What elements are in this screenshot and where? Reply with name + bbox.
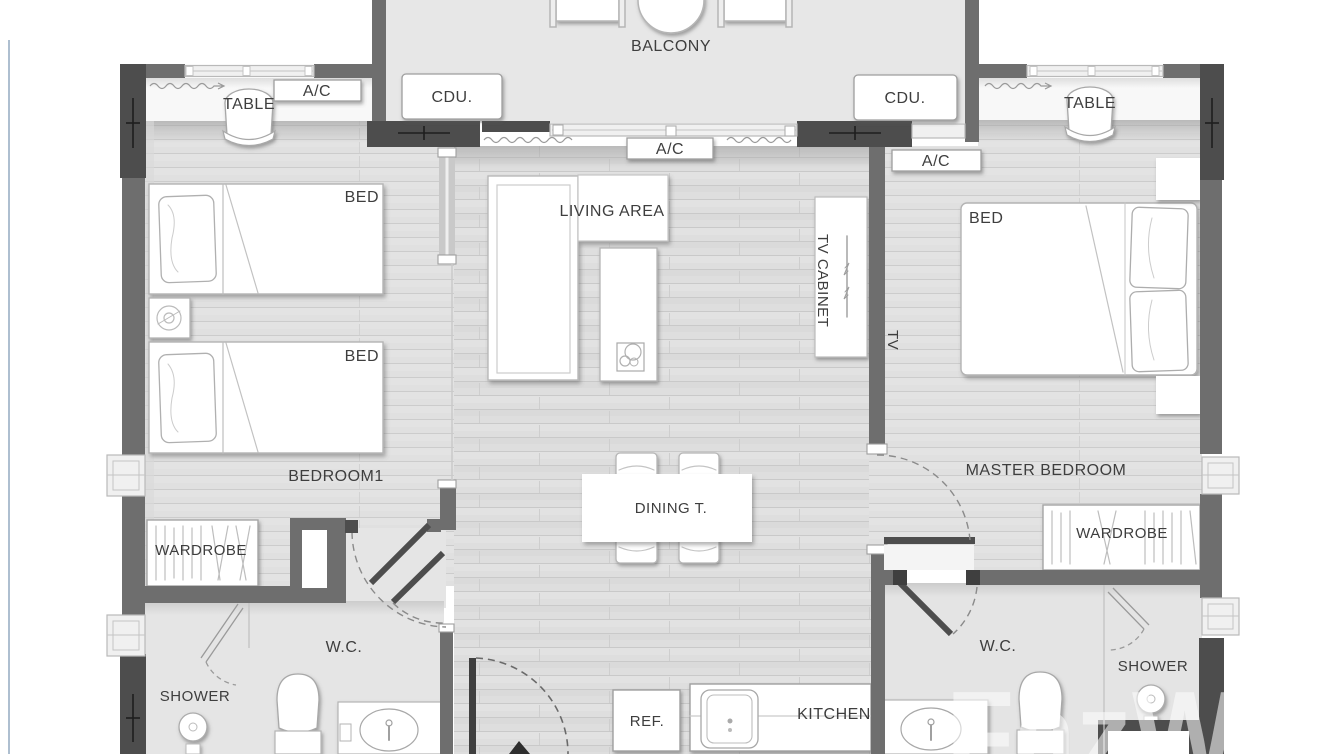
svg-text:SHOWER: SHOWER xyxy=(160,688,231,705)
svg-text:REF.: REF. xyxy=(630,713,665,730)
svg-text:CDU.: CDU. xyxy=(431,89,472,106)
svg-text:A/C: A/C xyxy=(656,141,684,158)
svg-text:FazWaz: FazWaz xyxy=(946,666,1342,754)
svg-text:W.C.: W.C. xyxy=(326,639,363,656)
svg-text:CDU.: CDU. xyxy=(884,90,925,107)
svg-text:DINING T.: DINING T. xyxy=(635,500,708,517)
svg-text:KITCHEN: KITCHEN xyxy=(797,706,871,723)
svg-text:MASTER BEDROOM: MASTER BEDROOM xyxy=(966,462,1127,479)
svg-text:BALCONY: BALCONY xyxy=(631,38,711,55)
svg-text:WARDROBE: WARDROBE xyxy=(155,542,247,559)
svg-text:BED: BED xyxy=(345,348,379,365)
svg-text:TV CABINET: TV CABINET xyxy=(814,234,831,327)
svg-text:WARDROBE: WARDROBE xyxy=(1076,525,1168,542)
svg-text:LIVING AREA: LIVING AREA xyxy=(559,203,664,220)
svg-text:BEDROOM1: BEDROOM1 xyxy=(288,468,384,485)
svg-text:A/C: A/C xyxy=(922,153,950,170)
svg-text:BED: BED xyxy=(969,210,1003,227)
svg-text:BED: BED xyxy=(345,189,379,206)
svg-text:TABLE: TABLE xyxy=(223,96,275,113)
svg-text:W.C.: W.C. xyxy=(980,638,1017,655)
svg-text:TABLE: TABLE xyxy=(1064,95,1116,112)
svg-text:TV: TV xyxy=(884,330,901,350)
svg-text:A/C: A/C xyxy=(303,83,331,100)
